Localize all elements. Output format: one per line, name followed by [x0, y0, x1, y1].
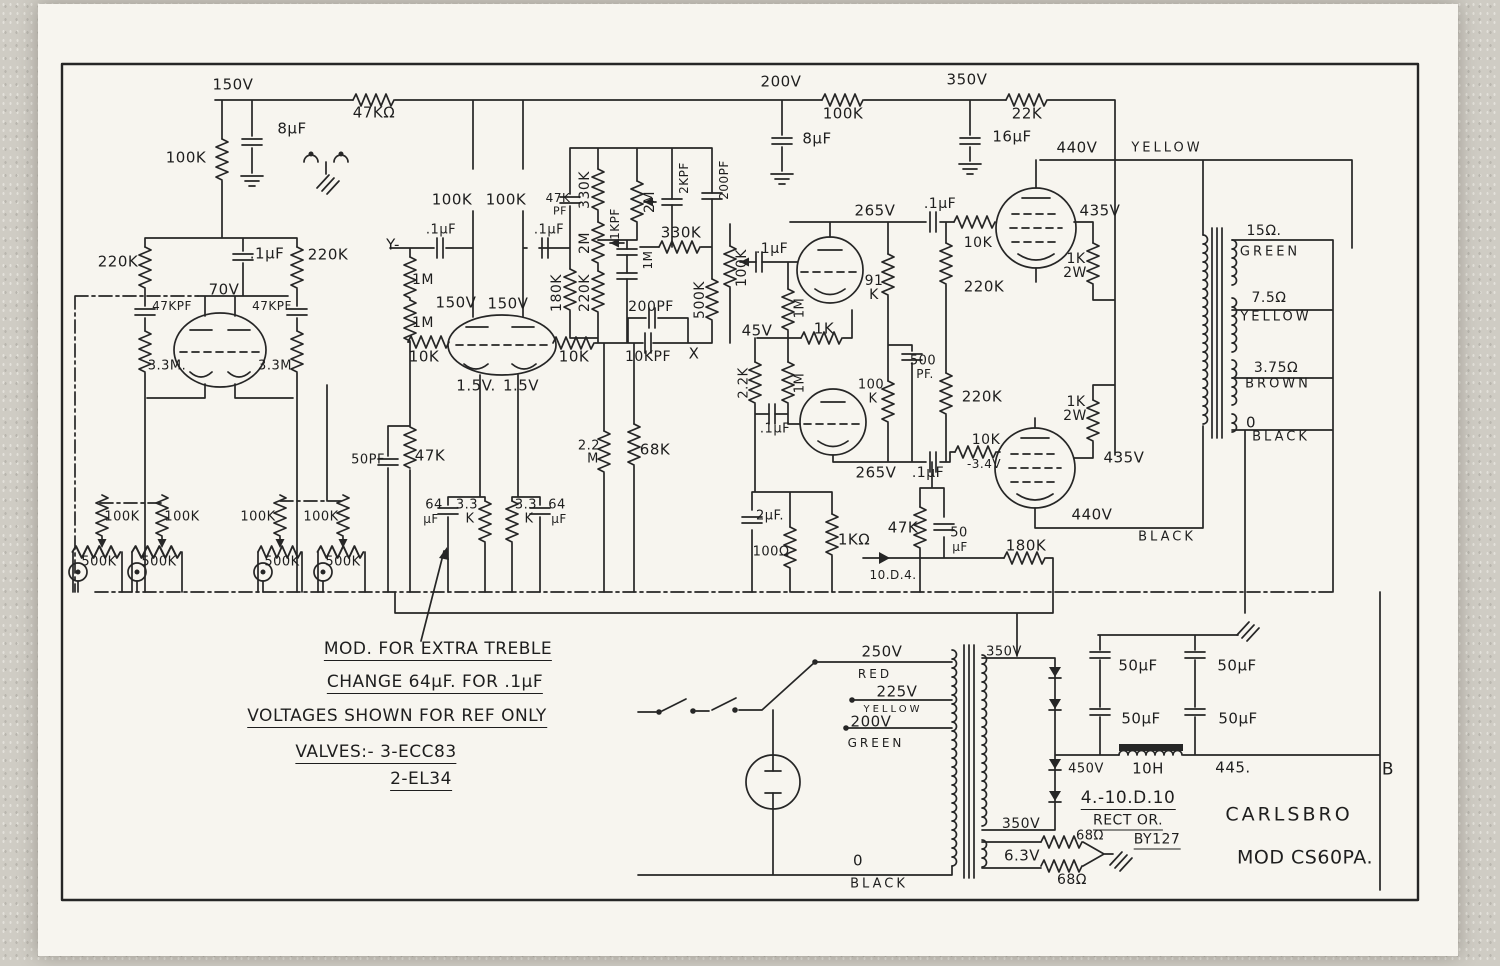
- schematic-label: 47KΩ: [353, 106, 395, 121]
- schematic-label: 3.3M.: [148, 360, 187, 373]
- schematic-label: 70V: [209, 283, 240, 298]
- schematic-label: 47KPF: [252, 300, 292, 312]
- schematic-label: 100K: [104, 511, 139, 524]
- schematic-label: 100K: [823, 107, 863, 122]
- schematic-label: .1μF: [426, 224, 456, 237]
- schematic-label: 100K: [432, 193, 472, 208]
- schematic-label: 47K: [546, 192, 571, 204]
- schematic-label: 330K: [661, 226, 701, 241]
- schematic-label: 1M: [794, 373, 807, 394]
- schematic-label: 68Ω: [1076, 830, 1104, 843]
- schematic-label: PF: [553, 206, 567, 217]
- schematic-label: .1μF: [924, 197, 956, 211]
- schematic-label: 10K: [559, 350, 589, 365]
- schematic-label: 8μF: [277, 122, 306, 137]
- schematic-label: .1μF: [912, 466, 944, 480]
- schematic-label: 50μF: [1118, 659, 1157, 674]
- schematic-label: 100Ω: [753, 546, 790, 559]
- schematic-label: 445.: [1215, 761, 1250, 776]
- schematic-label: 200PF: [718, 160, 730, 200]
- schematic-label: 0: [853, 854, 863, 869]
- schematic-label: 220K: [578, 274, 592, 312]
- schematic-label: 1.5V.: [456, 379, 495, 394]
- schematic-label: 200PF: [628, 300, 674, 314]
- schematic-label: μF: [551, 513, 567, 525]
- schematic-label: 68K: [640, 443, 670, 458]
- schematic-label: 500: [910, 355, 936, 368]
- schematic-label: 10K: [409, 350, 439, 365]
- schematic-label: 1M: [794, 298, 807, 319]
- schematic-label: 220K: [962, 390, 1002, 405]
- schematic-label: .1μF: [756, 242, 788, 256]
- schematic-label: 2W: [1063, 266, 1087, 280]
- schematic-label: 1KΩ: [838, 533, 870, 548]
- schematic-label: K: [868, 393, 877, 406]
- note-voltages: VOLTAGES SHOWN FOR REF ONLY: [247, 708, 547, 728]
- schematic-label: 50PF: [351, 454, 385, 467]
- schematic-label: 16μF: [992, 130, 1031, 145]
- note-mod-treble: MOD. FOR EXTRA TREBLE: [324, 641, 552, 661]
- schematic-label: 1.5V: [503, 379, 539, 394]
- schematic-label: 330K: [578, 171, 592, 209]
- schematic-label: 500K: [81, 556, 116, 569]
- schematic-label: 265V: [855, 204, 896, 219]
- schematic-label: RED: [858, 668, 892, 680]
- schematic-label: 1M: [412, 316, 434, 330]
- schematic-label: 180K: [1006, 539, 1046, 554]
- schematic-label: 100K: [486, 193, 526, 208]
- schematic-label: 500K: [325, 556, 360, 569]
- schematic-label: 15Ω.: [1247, 224, 1282, 238]
- schematic-label: 45V: [742, 324, 773, 339]
- schematic-label: 50: [950, 527, 968, 540]
- schematic-label: 3.3M: [258, 360, 292, 373]
- schematic-label: M: [587, 453, 599, 466]
- schematic-label: YELLOW: [1240, 311, 1311, 324]
- schematic-label: PF.: [916, 368, 934, 380]
- schematic-label: 220K: [308, 248, 348, 263]
- schematic-label: .1μF: [760, 423, 790, 436]
- note-valves-2: 2-EL34: [390, 771, 452, 791]
- schematic-label: 350V: [947, 73, 988, 88]
- schematic-label: 1K: [814, 322, 834, 337]
- schematic-label: B: [1382, 762, 1394, 779]
- schematic-label: 2M: [578, 232, 592, 254]
- rectifier-note-line-2: RECT OR.: [1093, 814, 1163, 831]
- schematic-label: 100K: [240, 511, 275, 524]
- schematic-label: 10K: [964, 236, 993, 250]
- schematic-label: 150V: [436, 296, 477, 311]
- schematic-label: 1K: [1066, 252, 1085, 266]
- schematic-label: BLACK: [1138, 531, 1196, 544]
- rectifier-note-line-3: BY127: [1134, 833, 1181, 850]
- schematic-label: K: [869, 288, 879, 302]
- schematic-label: 47KPF: [152, 300, 192, 312]
- schematic-label: 2μF.: [756, 510, 784, 523]
- schematic-label: 2M: [643, 191, 657, 213]
- schematic-label: 100K: [166, 151, 206, 166]
- schematic-label: 150V: [213, 78, 254, 93]
- schematic-label: .1μF: [250, 247, 284, 262]
- schematic-label: 7.5Ω: [1252, 291, 1287, 305]
- schematic-label: BLACK: [1252, 431, 1310, 444]
- schematic-label: μF: [952, 541, 968, 553]
- schematic-label: 200V: [851, 715, 892, 730]
- schematic-page: 150V47KΩ8μF100K200V100K8μF350V22K16μF440…: [0, 0, 1500, 966]
- schematic-label: 10K: [972, 433, 1001, 447]
- schematic-label: 2W: [1063, 409, 1087, 423]
- schematic-label: 6.3V: [1004, 849, 1040, 864]
- schematic-label: 500K: [141, 556, 176, 569]
- schematic-label: 50μF: [1121, 712, 1160, 727]
- schematic-label: 500K: [264, 556, 299, 569]
- schematic-label: Y-: [386, 238, 400, 253]
- schematic-label: 1M: [642, 251, 654, 270]
- schematic-label: 200V: [761, 75, 802, 90]
- schematic-label: 435V: [1080, 204, 1121, 219]
- schematic-label: 1K: [1066, 395, 1085, 409]
- note-valves-1: VALVES:- 3-ECC83: [295, 744, 456, 764]
- model-number: MOD CS60PA.: [1237, 849, 1373, 868]
- schematic-label: 100K: [164, 511, 199, 524]
- schematic-label: 220K: [98, 255, 138, 270]
- schematic-label: 64: [548, 499, 566, 512]
- schematic-label: K: [524, 513, 533, 526]
- schematic-label: 91: [865, 274, 884, 288]
- schematic-label: 440V: [1072, 508, 1113, 523]
- schematic-label: 1M: [412, 273, 434, 287]
- schematic-label: 440V: [1057, 141, 1098, 156]
- schematic-label: 8μF: [802, 132, 831, 147]
- schematic-label: 225V: [877, 685, 918, 700]
- schematic-label: 250V: [862, 645, 903, 660]
- schematic-label: 50μF: [1218, 712, 1257, 727]
- schematic-label: 450V: [1068, 763, 1104, 776]
- schematic-label: 64: [425, 499, 443, 512]
- rectifier-note-line-1: 4.-10.D.10: [1081, 790, 1176, 810]
- schematic-label: 68Ω: [1057, 873, 1087, 887]
- schematic-label: μF: [423, 513, 439, 525]
- schematic-label: 47K: [888, 521, 918, 536]
- schematic-label: GREEN: [848, 737, 905, 749]
- note-change-cap: CHANGE 64μF. FOR .1μF: [327, 674, 543, 694]
- schematic-label: 2.2K: [738, 367, 751, 398]
- schematic-label: -3.4V: [967, 458, 1001, 470]
- schematic-label: 265V: [856, 466, 897, 481]
- schematic-label: 22K: [1012, 107, 1042, 122]
- schematic-label: 47K: [415, 449, 445, 464]
- schematic-label: 150V: [488, 297, 529, 312]
- schematic-label: 500K: [693, 281, 707, 319]
- schematic-label: 100K: [303, 511, 338, 524]
- schematic-label: YELLOW: [1131, 142, 1202, 155]
- schematic-label: BROWN: [1245, 378, 1311, 391]
- schematic-label: GREEN: [1240, 246, 1300, 259]
- schematic-labels: 150V47KΩ8μF100K200V100K8μF350V22K16μF440…: [0, 0, 1500, 966]
- schematic-label: 10.D.4.: [869, 569, 916, 581]
- schematic-label: 1KPF: [609, 208, 621, 240]
- schematic-label: 350V: [1002, 817, 1040, 831]
- schematic-label: 3.75Ω: [1254, 361, 1298, 375]
- schematic-label: 10KPF: [625, 350, 671, 364]
- schematic-label: 180K: [550, 274, 564, 312]
- schematic-label: 50μF: [1217, 659, 1256, 674]
- schematic-label: 3.3: [456, 499, 478, 512]
- schematic-label: 2KPF: [678, 162, 690, 194]
- schematic-label: 100K: [735, 249, 749, 287]
- schematic-label: 220K: [964, 280, 1004, 295]
- schematic-label: 3.3: [515, 499, 537, 512]
- schematic-label: K: [465, 513, 474, 526]
- schematic-label: 10H: [1132, 762, 1164, 777]
- schematic-label: 350V: [986, 646, 1022, 659]
- schematic-label: .1μF: [534, 224, 564, 237]
- brand-name: CARLSBRO: [1225, 806, 1352, 825]
- schematic-label: 0: [1246, 416, 1256, 431]
- schematic-label: 435V: [1104, 451, 1145, 466]
- schematic-label: 100: [858, 379, 884, 392]
- schematic-label: X: [689, 347, 700, 362]
- schematic-label: BLACK: [850, 878, 908, 891]
